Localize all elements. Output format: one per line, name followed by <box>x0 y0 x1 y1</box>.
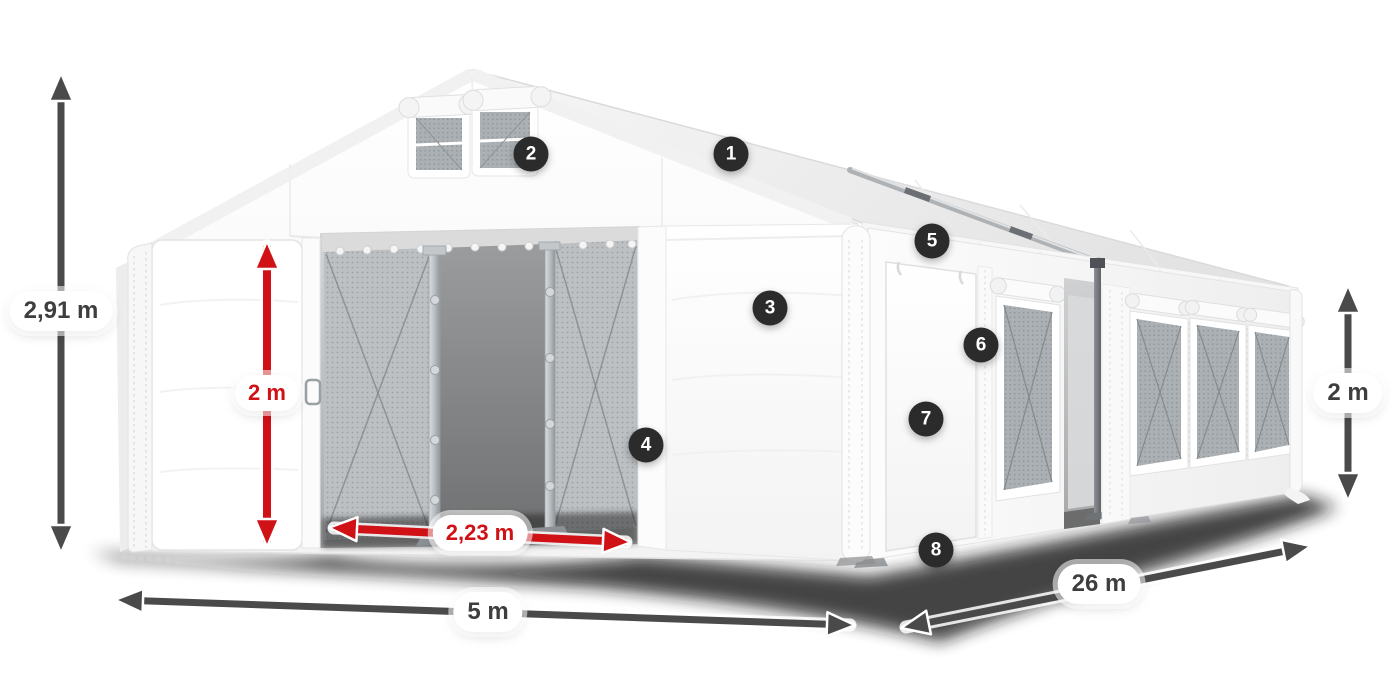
corner-post <box>836 226 876 566</box>
callout-badge-4: 4 <box>629 428 664 463</box>
callout-badge-2: 2 <box>514 137 549 172</box>
side-pole <box>1094 266 1101 516</box>
door-opening <box>320 226 640 548</box>
dimension-door-height-label: 2 m <box>235 375 299 411</box>
tent-dimension-diagram: 2,91 m 2 m 2,23 m 5 m 26 m 2 m 1 2 3 4 5… <box>0 0 1400 700</box>
door-jamb <box>638 226 666 550</box>
tent-illustration <box>0 0 1400 700</box>
corner-post <box>116 243 152 552</box>
side-window <box>1184 299 1251 468</box>
dimension-gable-width-label: 5 m <box>453 592 522 632</box>
callout-badge-3: 3 <box>753 291 788 326</box>
gable-window-roll <box>463 86 552 112</box>
dimension-side-height-label: 2 m <box>1313 373 1382 413</box>
callout-badge-1: 1 <box>714 137 749 172</box>
dimension-door-width-label: 2,23 m <box>433 515 528 551</box>
dimension-length-label: 26 m <box>1058 564 1141 604</box>
side-window <box>1124 292 1193 476</box>
callout-badge-5: 5 <box>915 224 950 259</box>
door-jamb <box>302 238 320 548</box>
callout-badge-8: 8 <box>919 533 954 568</box>
side-window <box>989 277 1066 501</box>
dimension-total-height-label: 2,91 m <box>10 291 113 331</box>
callout-badge-6: 6 <box>964 328 999 363</box>
front-panel <box>666 224 858 561</box>
callout-badge-7: 7 <box>909 402 944 437</box>
